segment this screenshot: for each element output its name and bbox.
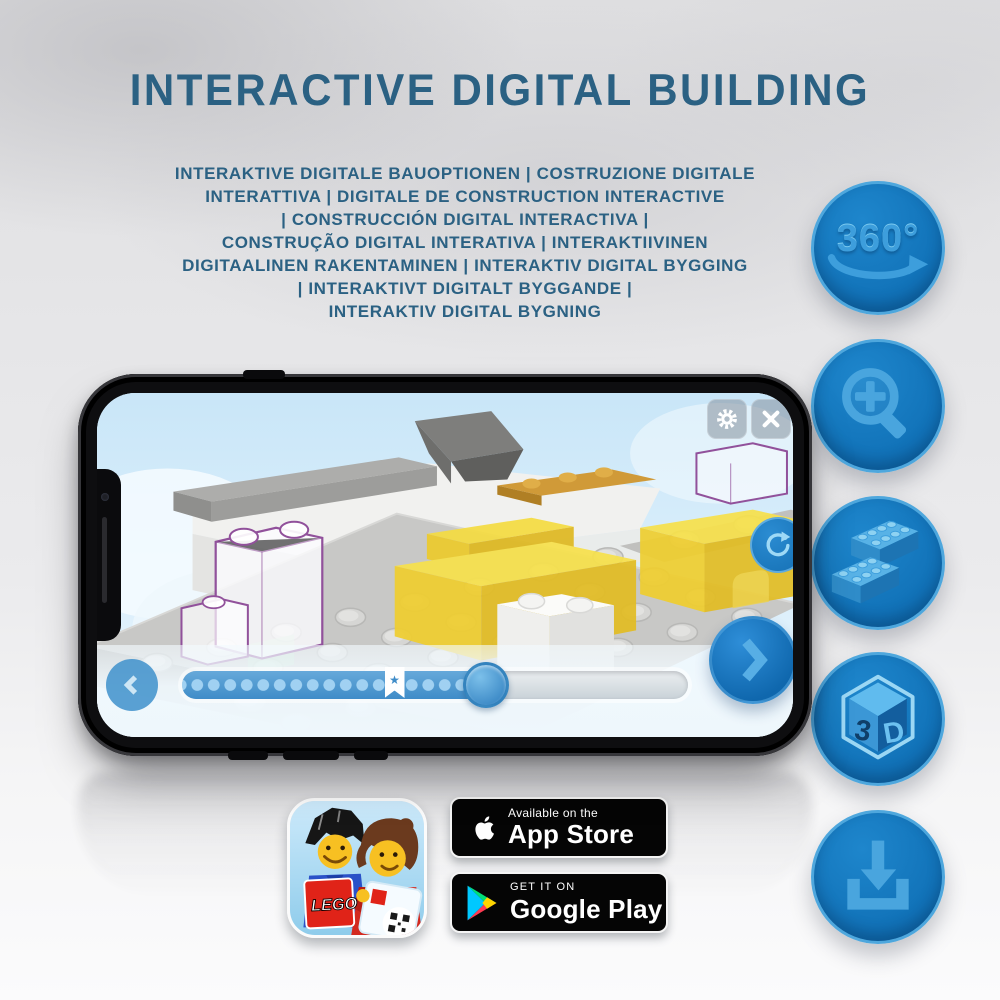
gear-icon [715,407,739,431]
google-play-icon [465,884,499,922]
scene-ghost-brick-right [696,443,787,503]
rotation-arrow-icon [826,253,930,283]
chevron-right-icon [728,632,778,688]
next-step-button[interactable] [709,616,793,704]
phone-notch [97,469,121,641]
subtitle-line: INTERAKTIV DIGITAL BYGNING [55,300,875,323]
progress-fill [182,671,486,699]
phone-volume-button [228,751,268,760]
download-icon [811,810,945,944]
front-camera-icon [101,493,109,501]
close-button[interactable] [751,399,791,439]
3d-view-icon: 3 D [811,652,945,786]
subtitle-line: INTERAKTIVE DIGITALE BAUOPTIONEN | COSTR… [55,162,875,185]
lego-bricks-icon [828,513,928,613]
subtitle-line: INTERATTIVA | DIGITALE DE CONSTRUCTION I… [55,185,875,208]
google-play-name: Google Play [510,896,662,923]
subtitle-line: DIGITAALINEN RAKENTAMINEN | INTERAKTIV D… [55,254,875,277]
progress-thumb[interactable] [463,662,509,708]
page-title: INTERACTIVE DIGITAL BUILDING [0,65,1000,116]
phone-side-button [243,370,285,379]
subtitle-line: | INTERAKTIVT DIGITALT BYGGANDE | [55,277,875,300]
close-icon [760,408,782,430]
multilingual-subtitle: INTERAKTIVE DIGITALE BAUOPTIONEN | COSTR… [55,162,875,323]
previous-step-button[interactable] [106,659,158,711]
google-play-tagline: GET IT ON [510,882,662,894]
bricks-icon [811,496,945,630]
download-arrow-icon [832,831,924,923]
rotate-arrow-icon [762,529,793,561]
build-progress-bar[interactable]: ★ [182,671,688,699]
app-store-name: App Store [508,821,634,848]
apple-icon [465,808,497,848]
phone-volume-button [354,751,388,760]
app-store-badge[interactable]: Available on the App Store [450,797,668,858]
store-badges: Available on the App Store GET IT ON Goo… [450,797,668,933]
lego-app-icon: LEGO [287,798,427,938]
lego-logo-text: LEGO [311,895,358,915]
subtitle-line: CONSTRUÇÃO DIGITAL INTERATIVA | INTERAKT… [55,231,875,254]
3d-cube-icon: 3 D [828,669,928,769]
360-rotation-icon: 360° [811,181,945,315]
phone-volume-button [283,751,339,760]
marketing-page: INTERACTIVE DIGITAL BUILDING INTERAKTIVE… [0,0,1000,1000]
app-store-tagline: Available on the [508,807,634,820]
lego-logo: LEGO [304,878,359,929]
settings-button[interactable] [707,399,747,439]
phone-mockup: ★ [78,374,812,756]
magnifier-plus-icon [832,360,924,452]
google-play-badge[interactable]: GET IT ON Google Play [450,872,668,933]
phone-reflection [78,772,812,902]
speaker-icon [102,517,107,603]
app-screen: ★ [97,393,793,737]
subtitle-line: | CONSTRUCCIÓN DIGITAL INTERACTIVA | [55,208,875,231]
zoom-in-icon [811,339,945,473]
chevron-left-icon [119,672,145,698]
lego-app-artwork: LEGO [290,801,424,935]
